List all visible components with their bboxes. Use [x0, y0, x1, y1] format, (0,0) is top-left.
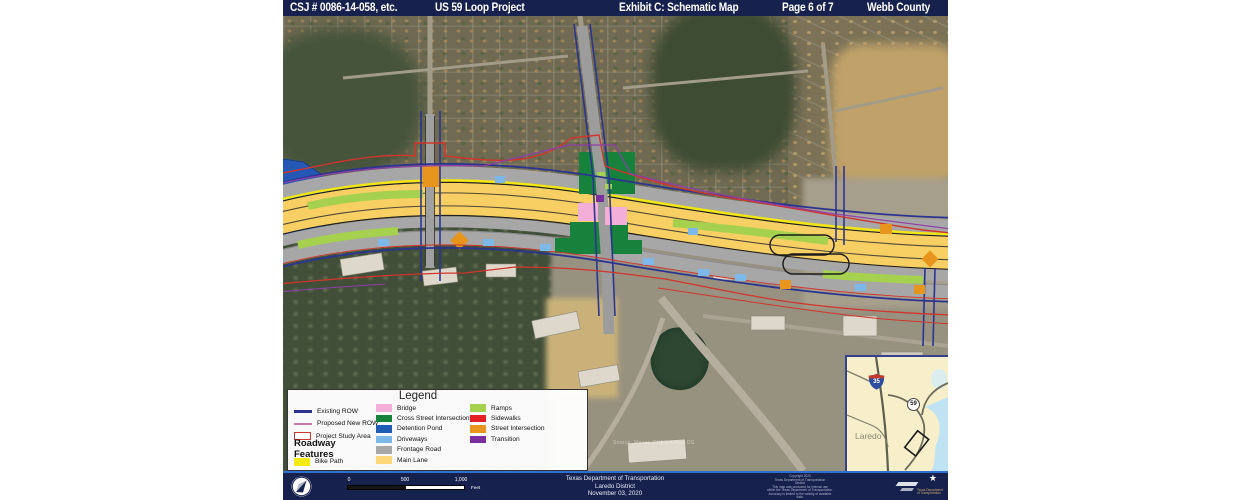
map-sheet: CSJ # 0086-14-058, etc. US 59 Loop Proje… — [283, 0, 948, 500]
cross-street-swatch — [376, 415, 392, 423]
legend-item-street-intersection: Street Intersection — [470, 424, 586, 434]
map-date: November 03, 2020 — [510, 490, 720, 498]
project-name: US 59 Loop Project — [435, 0, 525, 16]
txdot-logo-slash — [896, 482, 919, 486]
legend-box: Legend Existing ROW Proposed New ROW Pro… — [287, 389, 588, 471]
scale-start: 0 — [348, 477, 351, 483]
transition-swatch — [470, 436, 486, 444]
page-number: Page 6 of 7 — [782, 0, 834, 16]
txdot-logo: ★ Texas Department of Transportation — [891, 475, 943, 499]
street-intersection-swatch — [470, 425, 486, 433]
driveways-swatch — [376, 436, 392, 444]
legend-item-detention-pond: Detention Pond — [376, 424, 468, 434]
legend-item-frontage-road: Frontage Road — [376, 445, 468, 455]
legend-item-sidewalks: Sidewalks — [470, 413, 586, 423]
inset-roads — [847, 357, 948, 471]
legend-column-left: Existing ROW Proposed New ROW Project St… — [294, 405, 376, 468]
scale-unit: Feet — [471, 485, 480, 490]
location-inset-map: 35 59 Laredo — [845, 355, 948, 471]
txdot-logo-slash-small — [900, 488, 914, 491]
copyright-block: Copyright 2020 Texas Department of Trans… — [738, 475, 862, 500]
detention-pond-swatch — [376, 425, 392, 433]
legend-item-existing-row: Existing ROW — [294, 405, 376, 418]
schematic-map: Source: Maxar, CNES/Airbus DS Legend Exi… — [283, 16, 948, 471]
agency-name: Texas Department of Transportation — [510, 475, 720, 483]
bridge-swatch — [376, 404, 392, 412]
existing-row-swatch — [294, 410, 312, 413]
north-arrow-icon — [291, 476, 312, 497]
footer-bar: 0 500 1,000 Feet Texas Department of Tra… — [283, 471, 948, 500]
legend-item-proposed-row: Proposed New ROW — [294, 418, 376, 431]
footer-agency-block: Texas Department of Transportation Lared… — [510, 475, 720, 498]
legend-column-right: Ramps Sidewalks Street Intersection Tran… — [470, 403, 586, 445]
scale-end: 1,000 — [455, 477, 468, 483]
proposed-row-swatch — [294, 423, 312, 425]
legend-item-main-lane: Main Lane — [376, 455, 468, 465]
legend-item-driveways: Driveways — [376, 434, 468, 444]
scale-bar: 0 500 1,000 Feet — [347, 476, 487, 498]
district-name: Laredo District — [510, 483, 720, 491]
bike-path-swatch — [294, 458, 310, 466]
frontage-road-swatch — [376, 446, 392, 454]
txdot-star-icon: ★ — [929, 473, 937, 484]
legend-title: Legend — [288, 390, 548, 402]
title-bar: CSJ # 0086-14-058, etc. US 59 Loop Proje… — [283, 0, 948, 16]
scale-bar-graphic — [347, 485, 465, 490]
txdot-logo-caption: Texas Department of Transportation — [917, 489, 943, 496]
main-lane-swatch — [376, 456, 392, 464]
exhibit-page: CSJ # 0086-14-058, etc. US 59 Loop Proje… — [0, 0, 1235, 500]
legend-item-bike-path: Bike Path — [294, 456, 376, 469]
legend-column-mid: Bridge Cross Street Intersections Detent… — [376, 403, 468, 465]
interstate-35-shield: 35 — [868, 373, 885, 390]
us-59-shield: 59 — [907, 398, 920, 411]
exhibit-title: Exhibit C: Schematic Map — [619, 0, 739, 16]
legend-item-cross-street: Cross Street Intersections — [376, 413, 468, 423]
sidewalks-swatch — [470, 415, 486, 423]
county-name: Webb County — [867, 0, 930, 16]
roadway-features-heading: Roadway Features — [294, 443, 376, 456]
legend-item-ramps: Ramps — [470, 403, 586, 413]
scale-mid: 500 — [401, 477, 409, 483]
ramps-swatch — [470, 404, 486, 412]
legend-item-bridge: Bridge — [376, 403, 468, 413]
inset-city-label: Laredo — [855, 431, 881, 441]
csj-number: CSJ # 0086-14-058, etc. — [290, 0, 397, 16]
legend-item-transition: Transition — [470, 434, 586, 444]
